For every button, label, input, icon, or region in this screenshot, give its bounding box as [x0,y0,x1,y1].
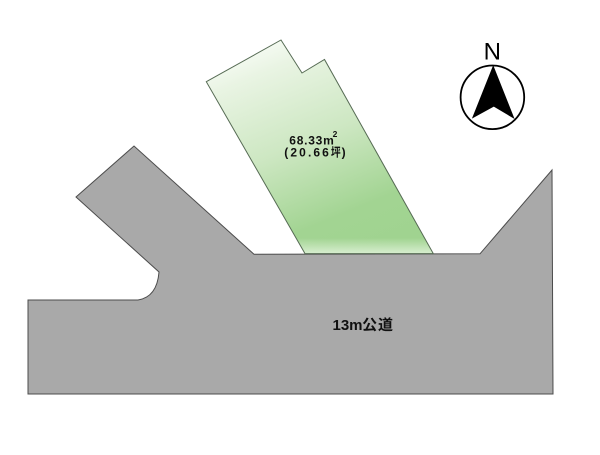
svg-text:): ) [342,146,346,160]
svg-text:13m: 13m [333,317,363,334]
svg-text:2: 2 [333,129,338,139]
svg-text:(20.66: (20.66 [284,146,331,160]
svg-text:N: N [484,38,501,65]
